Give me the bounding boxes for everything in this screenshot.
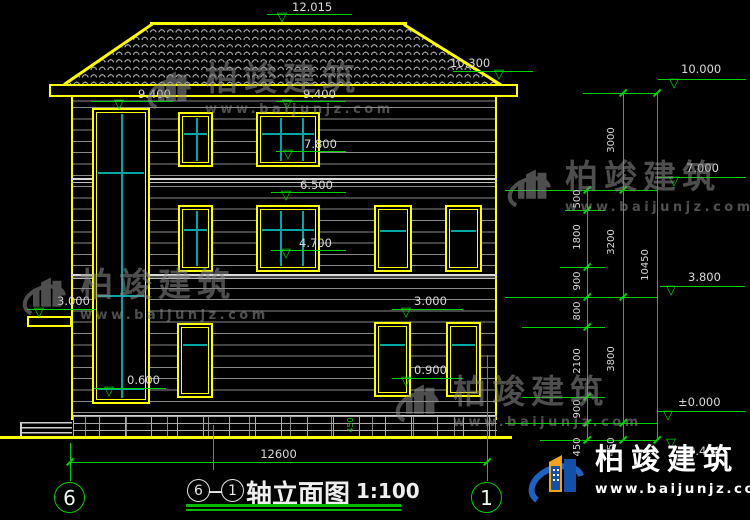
dim-line-width: [70, 462, 487, 463]
elev-label-eave-right: 9.400: [303, 89, 336, 101]
elev-triangle-icon: [283, 149, 293, 161]
elev-label-stair-sill: 0.600: [127, 375, 160, 387]
ground-line: [0, 436, 512, 439]
elev-triangle-icon: [104, 386, 114, 398]
elev-triangle-icon: [34, 307, 44, 319]
elev-label-10000: 10.000: [681, 64, 721, 76]
elev-label-ridge: 12.015: [292, 2, 332, 14]
title-underline: [186, 504, 401, 507]
elev-triangle-icon: [401, 376, 411, 388]
level-line-900: [522, 397, 605, 398]
level-line-3000: [522, 327, 605, 328]
elev-label-f1-sill: 0.900: [414, 365, 447, 377]
dim-chain-mid: [623, 93, 624, 440]
elev-triangle-icon: [401, 307, 411, 319]
window-2f-right1: [374, 205, 412, 272]
elev-label-f3-sill: 7.800: [304, 139, 337, 151]
elev-label-eave-edge: 10.300: [450, 58, 490, 70]
drawing-scale: 1:100: [356, 479, 420, 503]
dim-label-total-width: 12600: [70, 449, 487, 461]
title-axis-from: 6: [187, 479, 210, 502]
entry-steps: [20, 422, 72, 436]
elev-triangle-icon: [663, 410, 673, 422]
window-2f-right2: [445, 205, 482, 272]
site-logo-brand: 柏竣建筑: [595, 445, 750, 474]
dim-label-overall-height: 10450: [641, 243, 651, 287]
elev-label-canopy: 3.000: [57, 296, 90, 308]
elev-line: [453, 71, 533, 72]
site-logo-url: www.baijunjz.com: [595, 481, 750, 497]
plinth-dim-label: 450: [347, 414, 355, 436]
dim-label: 1800: [573, 215, 583, 259]
axis-bubble-6: 6: [54, 482, 85, 513]
dim-label: 800: [573, 289, 583, 333]
eave-band: [49, 84, 518, 97]
dim-chain-overall: [657, 93, 658, 440]
elev-label-f1-head: 3.000: [414, 296, 447, 308]
dim-label: 2100: [573, 339, 583, 383]
elev-label-7000: 7.000: [686, 163, 719, 175]
watermark-logo-icon: [505, 160, 557, 218]
level-line-m450: [540, 440, 658, 441]
window-2f-left: [178, 205, 213, 272]
site-logo-icon: [525, 445, 589, 511]
stone-plinth: [73, 415, 497, 438]
elev-label-f2-head: 6.500: [300, 180, 333, 192]
axis-bubble-1: 1: [471, 482, 502, 513]
elev-line: [91, 101, 173, 102]
dim-label: 3200: [607, 220, 617, 264]
title-axis-to: 1: [221, 479, 244, 502]
elev-label-0000: ±0.000: [678, 397, 721, 409]
elev-triangle-icon: [277, 12, 287, 24]
elev-triangle-icon: [114, 99, 124, 111]
window-stairwell: [92, 108, 150, 404]
site-logo: 柏竣建筑 www.baijunjz.com: [525, 445, 750, 511]
elev-triangle-icon: [282, 99, 292, 111]
dim-label: 3000: [607, 118, 617, 162]
cad-elevation-drawing: 450 12.015 9.400 9.400 10.300 7.800 6.50…: [0, 0, 750, 520]
elev-triangle-icon: [669, 78, 679, 90]
elev-triangle-icon: [281, 248, 291, 260]
elev-label-3800: 3.800: [688, 272, 721, 284]
elev-triangle-icon: [666, 285, 676, 297]
axis-extension-mid: [213, 425, 214, 470]
elev-label-eave-left: 9.400: [138, 89, 171, 101]
window-1f-left: [177, 323, 213, 398]
dim-chain-inner: [587, 190, 588, 440]
window-3f-left: [178, 112, 213, 167]
roof-tile-hatch: [64, 25, 504, 85]
dim-label: 3800: [607, 337, 617, 381]
elev-triangle-icon: [494, 69, 504, 81]
elev-label-f2-sill: 4.700: [299, 238, 332, 250]
elev-triangle-icon: [281, 190, 291, 202]
window-1f-right2: [446, 322, 481, 397]
elev-triangle-icon: [669, 176, 679, 188]
title-underline: [186, 509, 401, 511]
